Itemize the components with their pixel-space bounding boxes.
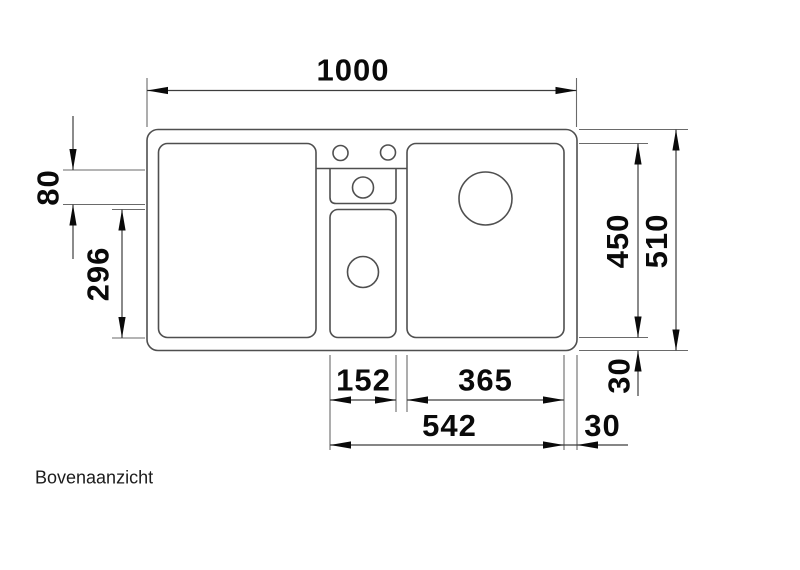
arrow-left-icon <box>147 87 168 94</box>
dim-label-inner-bowl-depth: 450 <box>600 214 635 269</box>
dim-label-ledge-depth: 80 <box>31 169 66 205</box>
dim-lower-middle-bowl-length: 296 <box>81 210 126 339</box>
dim-overall-depth: 510 <box>639 130 680 351</box>
arrow-down-icon <box>118 317 125 338</box>
drain-upper-middle <box>353 177 374 198</box>
dim-ledge-depth: 80 <box>31 116 77 259</box>
technical-drawing-page: 1000 80 296 450 510 30 152 <box>0 0 800 570</box>
arrow-up-icon <box>118 210 125 231</box>
drainboard <box>159 144 317 338</box>
tap-hole-left <box>333 146 348 161</box>
arrow-left-icon <box>407 396 428 403</box>
dim-rim-right: 30 <box>577 408 621 449</box>
arrow-down-icon <box>69 149 76 170</box>
arrow-up-icon <box>672 130 679 151</box>
tap-hole-right <box>381 145 396 160</box>
dim-label-bowls-overall-width: 542 <box>422 408 477 443</box>
view-caption: Bovenaanzicht <box>35 468 153 488</box>
dim-label-overall-width: 1000 <box>317 53 390 88</box>
drain-lower-middle <box>348 257 379 288</box>
dim-label-lower-middle-bowl-length: 296 <box>81 247 116 302</box>
arrow-right-icon <box>556 87 577 94</box>
arrow-right-icon <box>543 441 564 448</box>
dim-label-rim-right: 30 <box>584 408 620 443</box>
dim-middle-bowl-width: 152 <box>330 363 396 404</box>
dim-label-main-bowl-width: 365 <box>458 363 513 398</box>
arrow-right-icon <box>543 396 564 403</box>
arrow-up-icon <box>634 144 641 165</box>
dim-overall-width: 1000 <box>147 53 577 95</box>
middle-bowl-lower <box>330 210 396 338</box>
dim-label-overall-depth: 510 <box>639 214 674 269</box>
dim-inner-bowl-depth: 450 <box>600 144 642 338</box>
arrow-down-icon <box>634 317 641 338</box>
sink-outline <box>147 130 577 351</box>
sink-top-view-drawing: 1000 80 296 450 510 30 152 <box>0 0 800 570</box>
sink-outer-rim <box>147 130 577 351</box>
dim-label-middle-bowl-width: 152 <box>336 363 391 398</box>
arrow-down-icon <box>672 330 679 351</box>
drain-main-bowl <box>459 172 512 225</box>
arrow-up-icon <box>69 205 76 226</box>
arrow-left-icon <box>330 441 351 448</box>
dim-rim-bottom: 30 <box>602 351 642 397</box>
dim-main-bowl-width: 365 <box>407 363 564 404</box>
dim-label-rim-bottom: 30 <box>602 357 637 393</box>
